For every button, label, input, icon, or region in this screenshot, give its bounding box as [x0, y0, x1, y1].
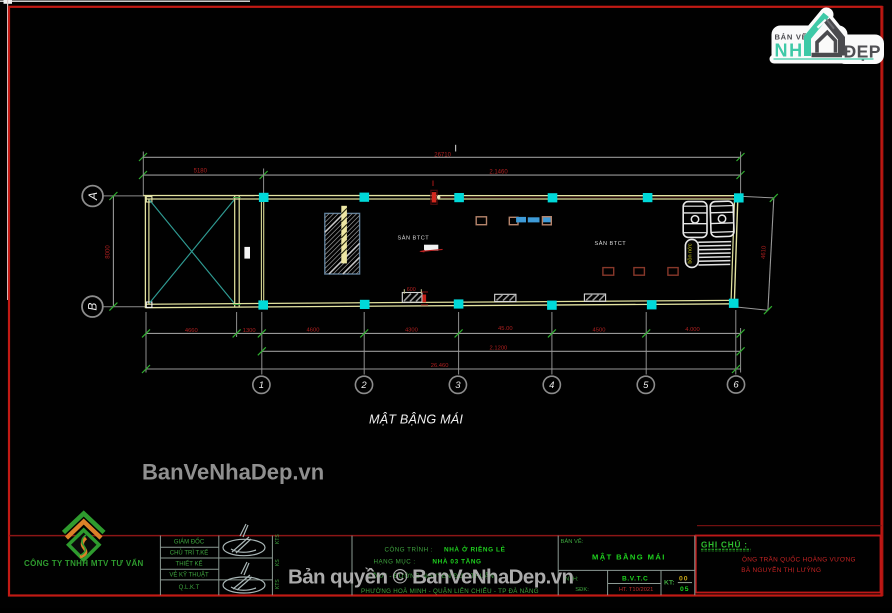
svg-text:4610: 4610	[761, 245, 768, 259]
svg-text:1: 1	[259, 380, 264, 391]
svg-text:THIẾT KẾ: THIẾT KẾ	[176, 560, 203, 567]
svg-text:3: 3	[455, 380, 461, 391]
svg-text:4500: 4500	[593, 328, 606, 334]
svg-text:MẬT BẬNG MÁI: MẬT BẬNG MÁI	[369, 411, 463, 426]
svg-text:CÔNG TY TNHH MTV TƯ VẤN: CÔNG TY TNHH MTV TƯ VẤN	[24, 558, 144, 568]
svg-text:B: B	[86, 303, 100, 311]
svg-text:SĐK:: SĐK:	[575, 587, 589, 593]
svg-text:4.000: 4.000	[685, 327, 700, 333]
svg-text:B.V.T.C: B.V.T.C	[622, 576, 648, 583]
svg-text:BẢN VẼ:: BẢN VẼ:	[561, 538, 584, 545]
svg-text:4300: 4300	[405, 328, 418, 334]
svg-text:CHỦ TRÌ T.KẾ: CHỦ TRÌ T.KẾ	[170, 549, 208, 556]
svg-text:6: 6	[733, 380, 739, 391]
svg-text:Bản quyền © BanVeNhaDep.vn: Bản quyền © BanVeNhaDep.vn	[288, 565, 574, 588]
svg-text:NHÀ Ở RIÊNG LẺ: NHÀ Ở RIÊNG LẺ	[444, 544, 506, 553]
svg-text:KT:: KT:	[664, 580, 675, 587]
svg-text:A: A	[86, 192, 100, 201]
svg-text:KTS: KTS	[275, 579, 281, 589]
svg-text:600: 600	[407, 287, 416, 293]
svg-text:bồn nớc: bồn nớc	[688, 243, 694, 263]
svg-text:5180: 5180	[194, 168, 208, 174]
svg-text:KTS: KTS	[275, 534, 281, 544]
svg-text:GHI CHÚ :: GHI CHÚ :	[701, 538, 748, 549]
svg-text:4600: 4600	[307, 328, 320, 334]
svg-text:GIÁM ĐỐC: GIÁM ĐỐC	[174, 539, 205, 546]
svg-text:HT. T10/2021: HT. T10/2021	[619, 587, 654, 593]
svg-text:NH: NH	[775, 41, 804, 61]
svg-text:KS: KS	[275, 559, 281, 566]
svg-text:26710: 26710	[434, 152, 451, 158]
svg-text:5: 5	[643, 380, 649, 391]
svg-text:SÀN BTCT: SÀN BTCT	[595, 240, 627, 247]
svg-text:BÀ NGUYỄN THỊ LƯỲNG: BÀ NGUYỄN THỊ LƯỲNG	[741, 565, 821, 574]
svg-text:26.460: 26.460	[431, 363, 449, 369]
svg-text:BanVeNhaDep.vn: BanVeNhaDep.vn	[142, 460, 324, 485]
svg-text:1300: 1300	[243, 328, 256, 334]
svg-text:00: 00	[679, 576, 689, 583]
svg-text:45.00: 45.00	[498, 326, 513, 332]
svg-text:VẺ KỸ THUẬT: VẺ KỸ THUẬT	[169, 571, 209, 578]
svg-text:4660: 4660	[185, 328, 198, 334]
svg-text:2.1200: 2.1200	[490, 346, 508, 352]
svg-text:MẬT BẦNG MÁI: MẬT BẦNG MÁI	[592, 552, 666, 562]
svg-text:SÀN BTCT: SÀN BTCT	[398, 234, 430, 241]
svg-text:Q.L.K.T: Q.L.K.T	[179, 585, 200, 591]
svg-text:4: 4	[549, 380, 554, 391]
svg-text:8000: 8000	[106, 245, 112, 259]
svg-text:05: 05	[680, 586, 690, 593]
svg-text:2: 2	[360, 380, 367, 391]
svg-text:2.1460: 2.1460	[489, 169, 508, 175]
svg-text:CÔNG TRÌNH :: CÔNG TRÌNH :	[385, 546, 434, 553]
